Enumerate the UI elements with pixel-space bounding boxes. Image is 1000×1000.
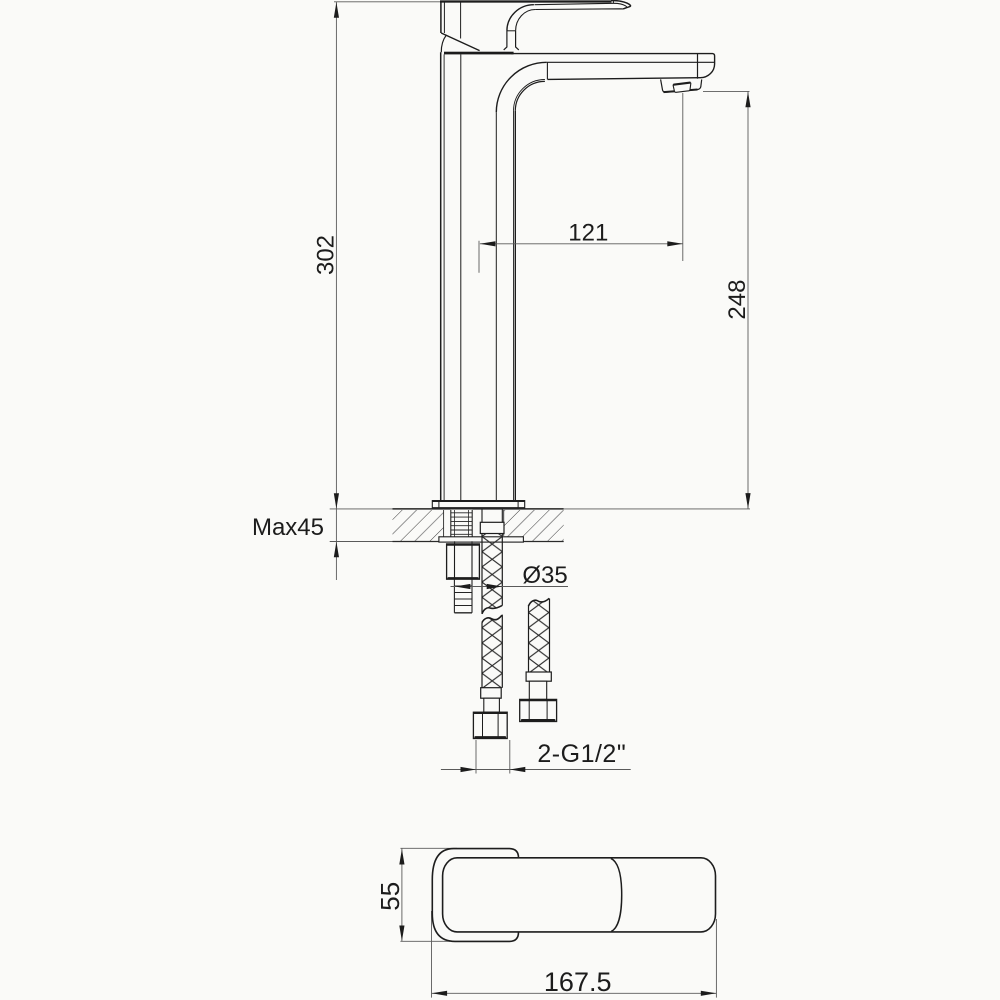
svg-text:121: 121 <box>568 219 608 246</box>
svg-text:248: 248 <box>724 280 751 320</box>
svg-text:Max45: Max45 <box>252 514 324 541</box>
svg-text:Ø35: Ø35 <box>522 562 567 589</box>
svg-text:2-G1/2": 2-G1/2" <box>537 740 626 768</box>
svg-text:302: 302 <box>313 235 340 275</box>
svg-text:55: 55 <box>375 882 405 911</box>
svg-text:167.5: 167.5 <box>544 967 612 997</box>
